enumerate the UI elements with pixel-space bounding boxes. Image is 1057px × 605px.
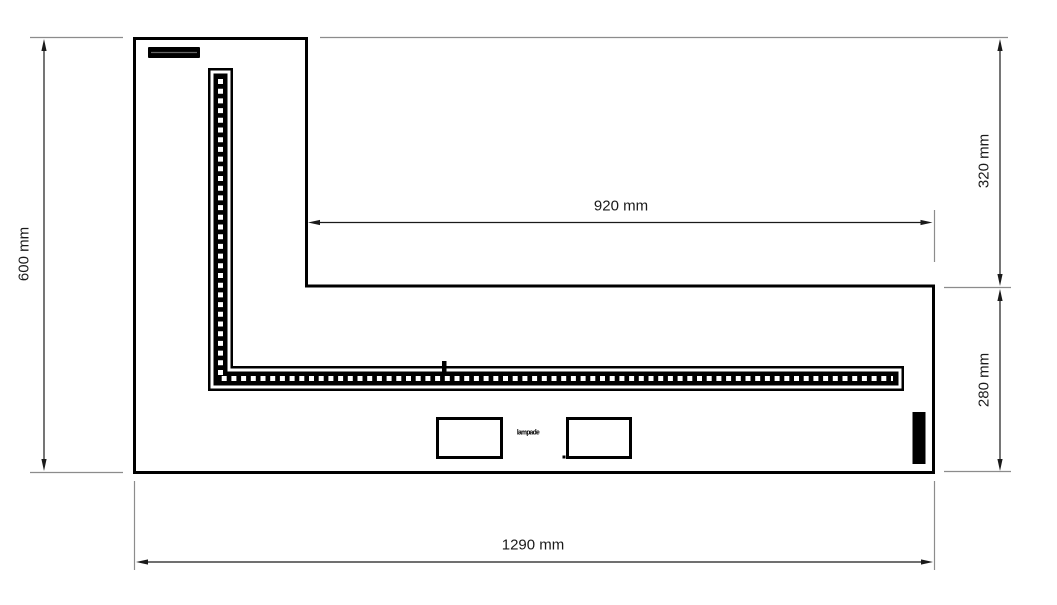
drawing-canvas: 600 mm 920 mm 320 mm 280 mm 1290 mm lamp… (0, 0, 1057, 605)
component-box-left (438, 419, 502, 458)
led-strip-gap (221, 71, 902, 379)
top-left-bar (148, 47, 200, 58)
dim-label-inner-top-width: 920 mm (594, 198, 648, 215)
dim-label-left-height: 600 mm (16, 227, 33, 281)
dimension-arrows (41, 39, 1002, 565)
arrow-920-right (921, 220, 933, 225)
technical-drawing (0, 0, 1057, 605)
extension-lines (30, 38, 1011, 571)
bottom-right-bar (913, 412, 926, 464)
arrow-280-up (997, 289, 1002, 301)
arrow-1290-left (136, 559, 148, 564)
led-strip-outer-border (221, 68, 905, 379)
led-strip-joint-tick (442, 361, 447, 376)
dim-label-bottom-width: 1290 mm (502, 537, 565, 554)
dimension-lines (44, 49, 1000, 562)
arrow-1290-right (921, 559, 933, 564)
arrow-320-down (997, 274, 1002, 286)
led-strip-inner-band (221, 74, 899, 379)
small-dot (563, 456, 566, 459)
arrow-600-down (41, 459, 46, 471)
led-strip-dots (221, 79, 894, 379)
arrow-600-up (41, 39, 46, 51)
led-strip (221, 68, 905, 379)
component-box-right (568, 419, 631, 458)
dim-label-right-upper-height: 320 mm (976, 134, 993, 188)
annotation-text: lampade (517, 429, 539, 437)
arrow-320-up (997, 39, 1002, 51)
arrow-920-left (308, 220, 320, 225)
arrow-280-down (997, 459, 1002, 471)
panel-outline (135, 39, 934, 473)
dim-label-right-lower-height: 280 mm (976, 353, 993, 407)
